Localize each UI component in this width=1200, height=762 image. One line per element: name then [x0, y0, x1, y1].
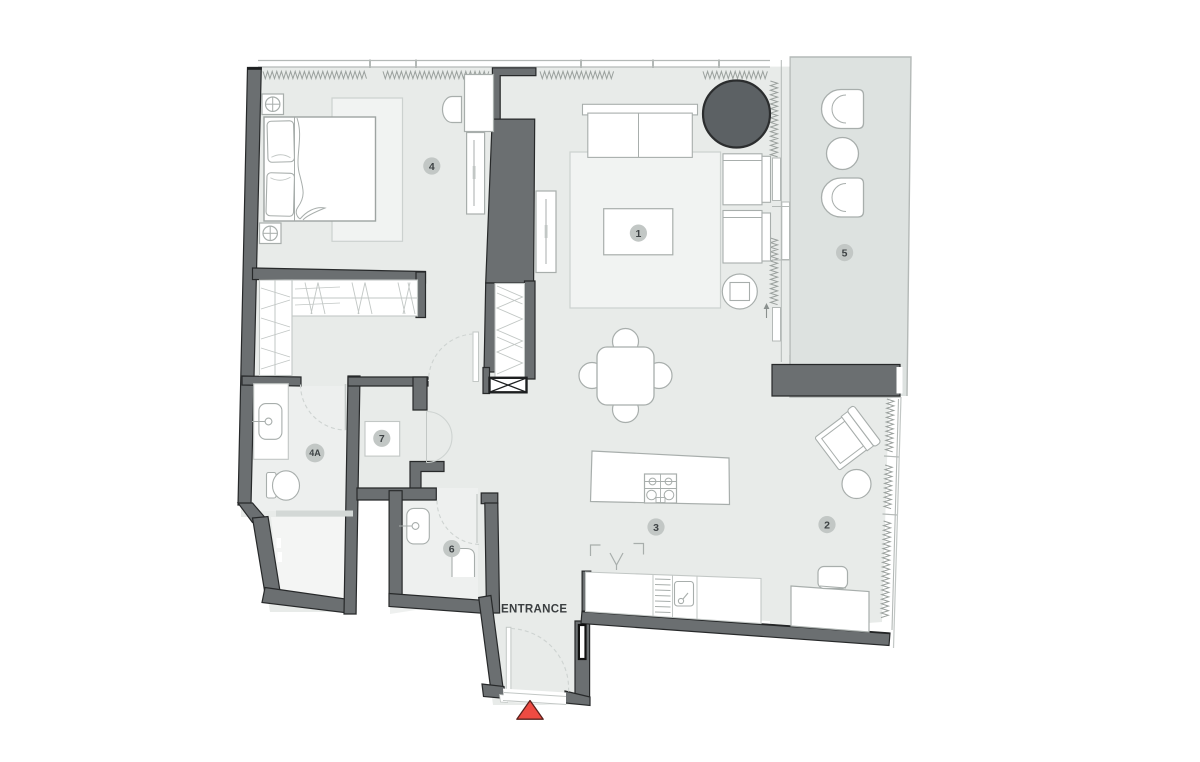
svg-text:7: 7	[379, 433, 385, 445]
svg-text:4: 4	[429, 161, 435, 173]
svg-text:ENTRANCE: ENTRANCE	[501, 604, 567, 616]
svg-text:5: 5	[842, 247, 848, 259]
svg-text:2: 2	[824, 519, 830, 531]
svg-text:6: 6	[449, 543, 455, 555]
svg-text:3: 3	[653, 522, 659, 534]
svg-text:1: 1	[635, 228, 641, 240]
svg-text:4A: 4A	[309, 448, 321, 458]
